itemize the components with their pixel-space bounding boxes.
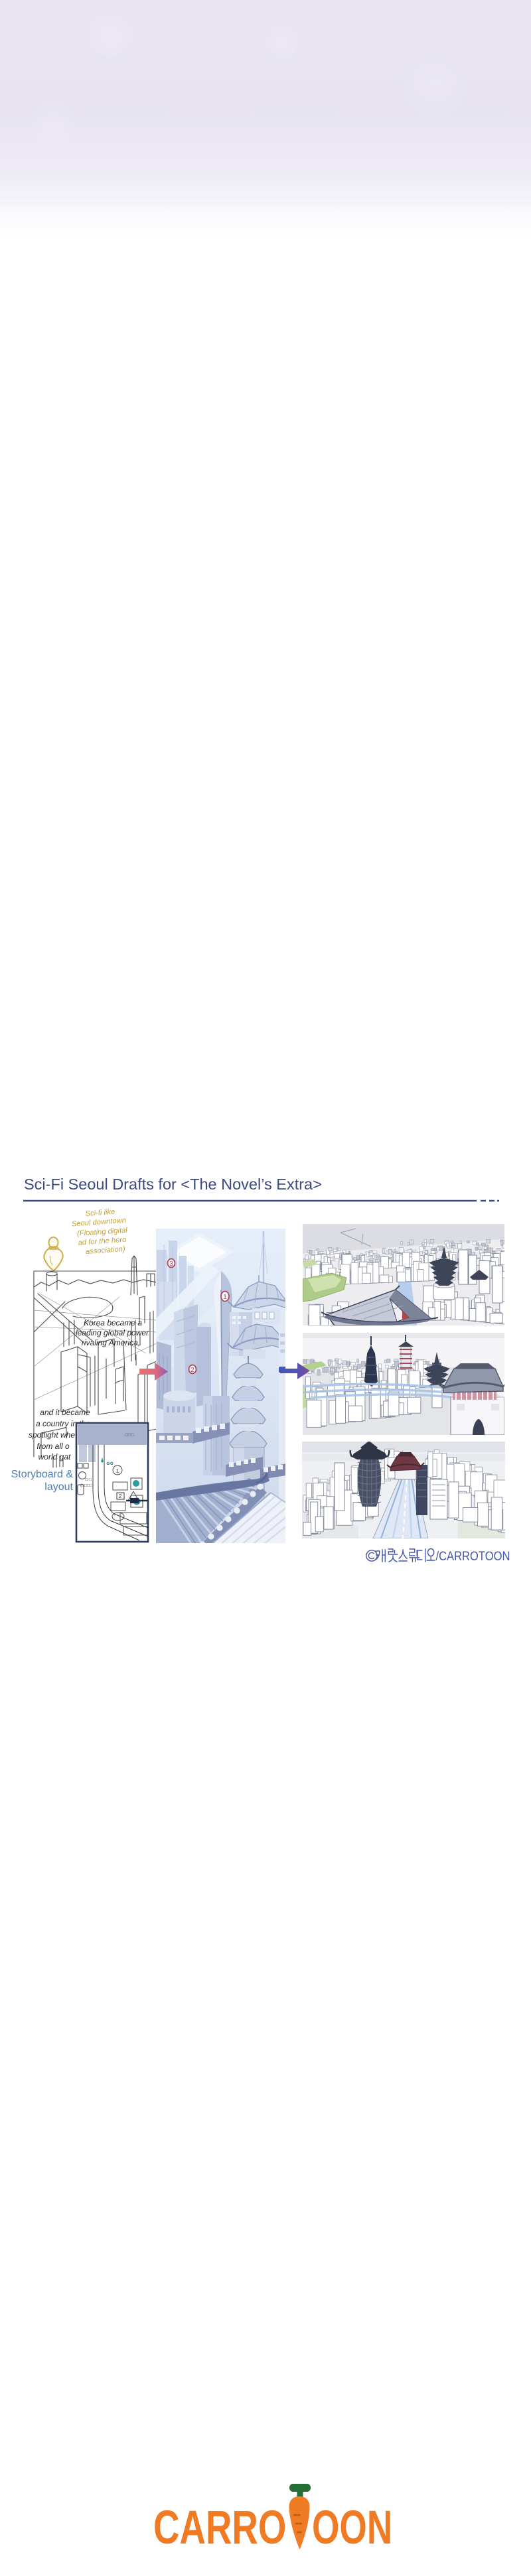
svg-text:leading global power: leading global power — [76, 1328, 149, 1337]
svg-text:CARRO: CARRO — [153, 2502, 286, 2553]
svg-text:association): association) — [86, 1245, 126, 1256]
svg-text:and it became: and it became — [40, 1408, 90, 1417]
svg-text:/CARROTOON: /CARROTOON — [436, 1549, 510, 1564]
svg-text:✿✿: ✿✿ — [106, 1461, 114, 1466]
svg-text:3: 3 — [169, 1260, 173, 1268]
svg-text:2: 2 — [119, 1493, 122, 1499]
svg-text:layout: layout — [44, 1481, 73, 1493]
svg-text:world gat: world gat — [38, 1452, 71, 1461]
svg-text:1: 1 — [116, 1468, 119, 1474]
svg-text:spotlight whe: spotlight whe — [29, 1430, 75, 1440]
svg-text:Storyboard &: Storyboard & — [11, 1469, 74, 1480]
svg-text:□□□: □□□ — [125, 1433, 134, 1438]
svg-text:Sci-Fi Seoul Drafts for <The N: Sci-Fi Seoul Drafts for <The Novel’s Ext… — [24, 1176, 322, 1193]
svg-text:Korea became a: Korea became a — [84, 1318, 142, 1327]
svg-text:2: 2 — [190, 1367, 194, 1374]
svg-text:□ □: □ □ — [85, 1477, 92, 1482]
svg-text:(□□□□): (□□□□) — [80, 1483, 94, 1488]
svg-text:1: 1 — [223, 1294, 227, 1301]
svg-text:from all o: from all o — [37, 1442, 70, 1451]
svg-text:Sci-fi like: Sci-fi like — [85, 1208, 115, 1218]
svg-text:rivaling America,: rivaling America, — [82, 1338, 140, 1347]
svg-text:OON: OON — [312, 2502, 392, 2554]
